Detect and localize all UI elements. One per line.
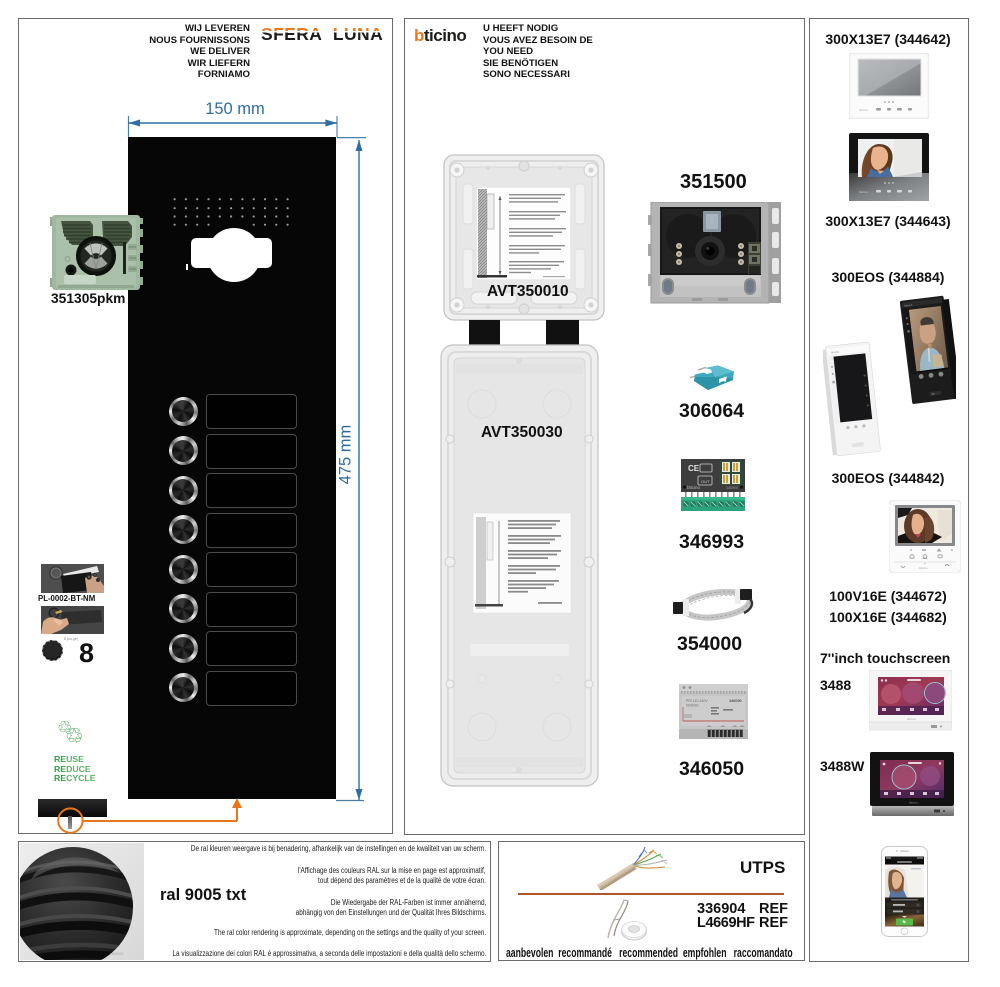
- svg-text:OUT: OUT: [701, 479, 710, 484]
- svg-text:ral9005: ral9005: [110, 951, 124, 956]
- svg-text:CE: CE: [688, 464, 700, 473]
- svg-text:bticino: bticino: [687, 485, 701, 490]
- svg-text:bticino: bticino: [919, 566, 928, 570]
- svg-text:346050: 346050: [729, 699, 742, 703]
- svg-text:bticino: bticino: [859, 108, 868, 112]
- svg-text:346993: 346993: [726, 486, 738, 490]
- svg-text:bticino: bticino: [909, 800, 918, 804]
- svg-text:bticino: bticino: [907, 717, 916, 721]
- svg-text:PRI 110-240V: PRI 110-240V: [686, 699, 708, 703]
- svg-text:50/60Hz: 50/60Hz: [686, 704, 699, 708]
- svg-text:bticino: bticino: [859, 190, 868, 194]
